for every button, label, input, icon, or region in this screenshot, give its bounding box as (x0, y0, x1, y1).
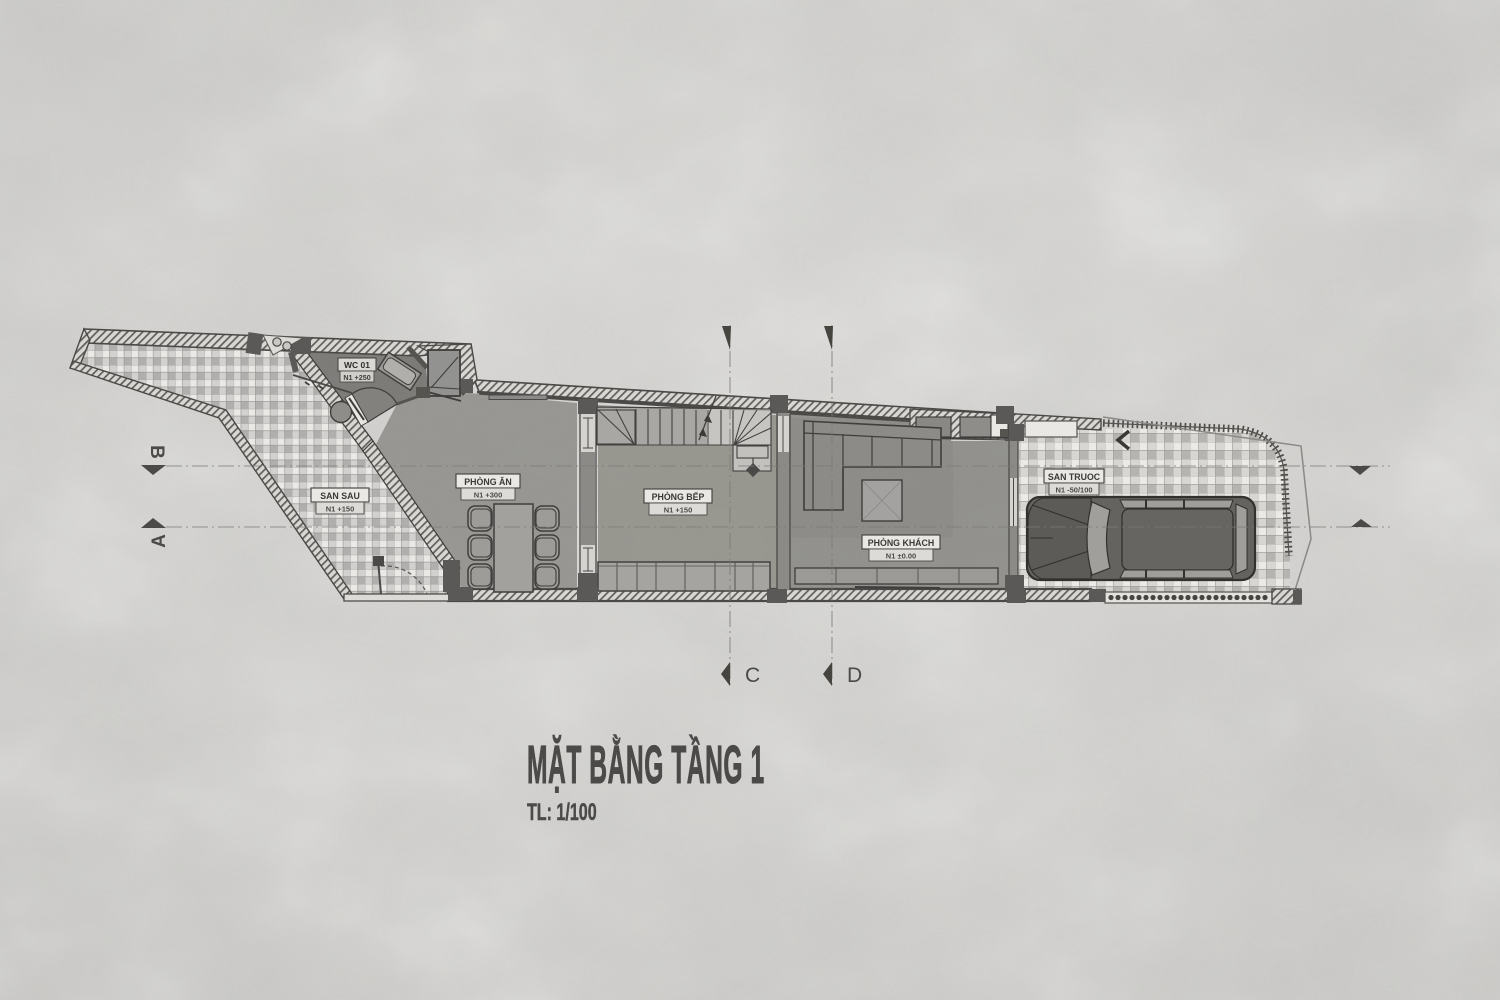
svg-text:N1 +250: N1 +250 (343, 373, 370, 382)
svg-text:C: C (745, 664, 760, 687)
svg-text:A: A (149, 534, 170, 548)
svg-text:PHÒNG BẾP: PHÒNG BẾP (652, 491, 705, 502)
svg-text:TL: 1/100: TL: 1/100 (527, 800, 597, 826)
svg-text:SAN SAU: SAN SAU (320, 491, 360, 501)
svg-text:N1 -50/100: N1 -50/100 (1055, 486, 1092, 495)
svg-text:MẶT BẰNG TẦNG 1: MẶT BẰNG TẦNG 1 (527, 734, 765, 794)
svg-text:B: B (146, 445, 167, 459)
svg-text:PHÒNG ĂN: PHÒNG ĂN (464, 476, 511, 487)
svg-text:N1 ±0.00: N1 ±0.00 (886, 552, 916, 561)
svg-text:WC 01: WC 01 (344, 360, 370, 370)
svg-text:SAN TRUOC: SAN TRUOC (1048, 472, 1101, 482)
svg-text:PHÒNG KHÁCH: PHÒNG KHÁCH (868, 537, 934, 548)
svg-text:D: D (847, 664, 862, 687)
svg-text:N1 +300: N1 +300 (474, 491, 503, 500)
svg-text:N1 +150: N1 +150 (326, 505, 355, 514)
svg-text:N1 +150: N1 +150 (664, 506, 693, 515)
